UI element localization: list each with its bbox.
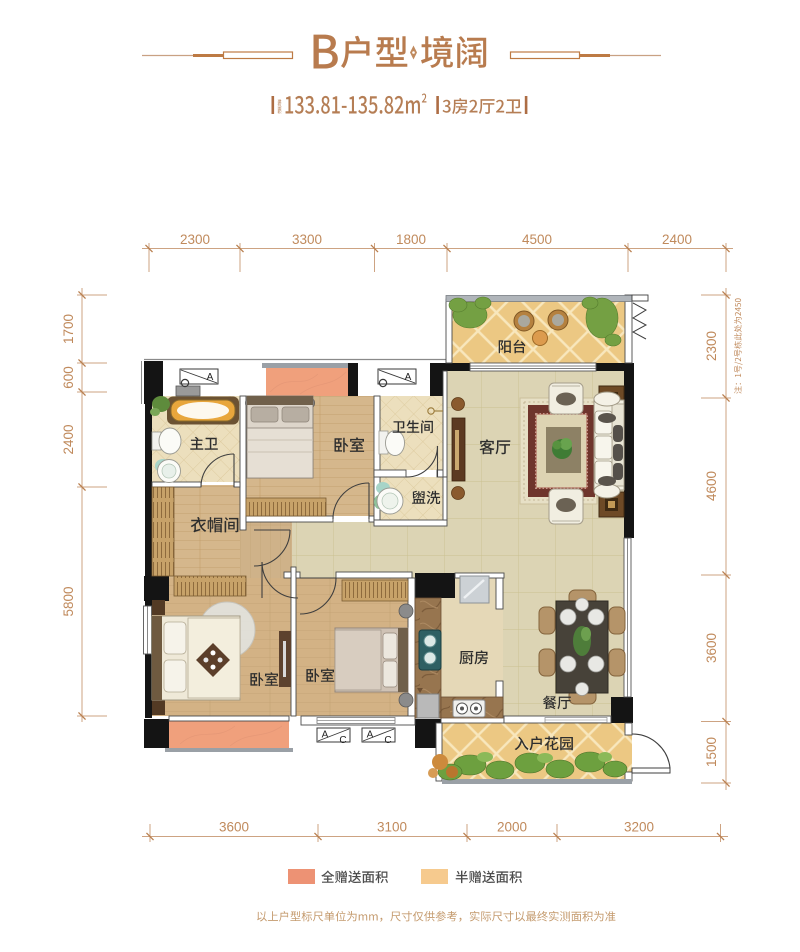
svg-text:C: C <box>339 735 346 746</box>
svg-text:2300: 2300 <box>180 232 210 247</box>
svg-text:2400: 2400 <box>61 424 76 454</box>
svg-text:5800: 5800 <box>61 586 76 616</box>
svg-text:C: C <box>384 735 391 746</box>
svg-text:1500: 1500 <box>704 737 719 767</box>
svg-text:4600: 4600 <box>704 471 719 501</box>
svg-text:1800: 1800 <box>396 232 426 247</box>
svg-text:A: A <box>322 730 329 741</box>
svg-text:3200: 3200 <box>624 820 654 835</box>
svg-text:3300: 3300 <box>292 232 322 247</box>
svg-text:3600: 3600 <box>219 820 249 835</box>
svg-text:2000: 2000 <box>497 820 527 835</box>
svg-text:3600: 3600 <box>704 633 719 663</box>
svg-text:600: 600 <box>61 366 76 389</box>
svg-text:A: A <box>207 372 214 383</box>
svg-text:2400: 2400 <box>662 232 692 247</box>
svg-text:A: A <box>405 372 412 383</box>
svg-text:A: A <box>367 730 374 741</box>
svg-text:4500: 4500 <box>522 232 552 247</box>
svg-text:3100: 3100 <box>377 820 407 835</box>
svg-text:2300: 2300 <box>704 331 719 361</box>
svg-text:1700: 1700 <box>61 314 76 344</box>
